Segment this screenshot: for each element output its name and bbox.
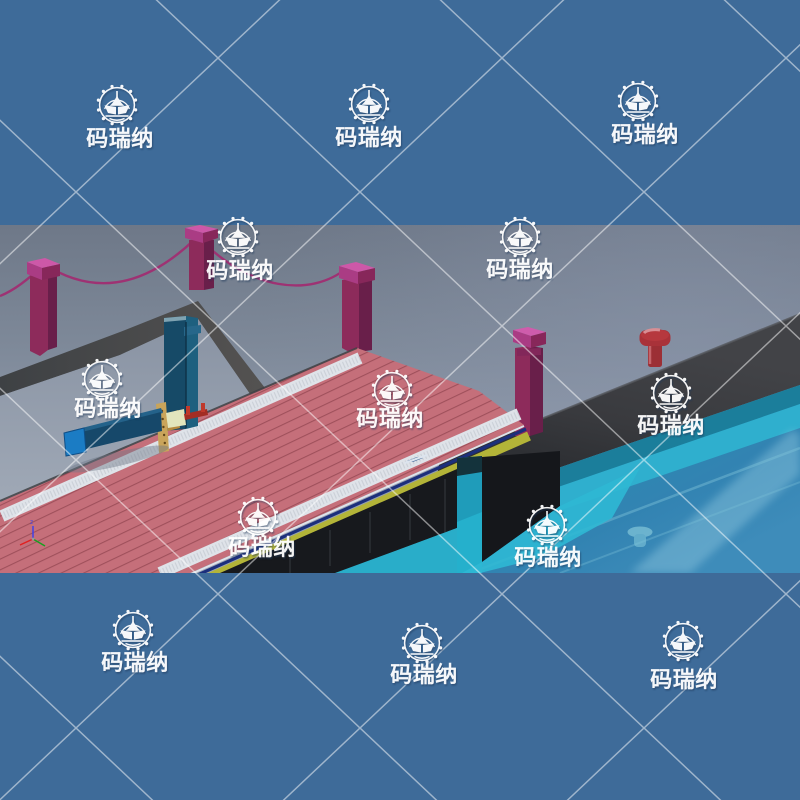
svg-text:码瑞纳: 码瑞纳 [101,650,169,675]
svg-text:码瑞纳: 码瑞纳 [514,545,582,570]
svg-text:码瑞纳: 码瑞纳 [86,126,154,151]
svg-text:码瑞纳: 码瑞纳 [74,396,142,421]
svg-text:码瑞纳: 码瑞纳 [335,125,403,150]
svg-text:码瑞纳: 码瑞纳 [390,662,458,687]
svg-text:码瑞纳: 码瑞纳 [206,258,274,283]
svg-text:码瑞纳: 码瑞纳 [486,257,554,282]
svg-text:码瑞纳: 码瑞纳 [637,413,705,438]
svg-text:码瑞纳: 码瑞纳 [611,122,679,147]
svg-text:码瑞纳: 码瑞纳 [356,406,424,431]
svg-text:码瑞纳: 码瑞纳 [228,535,296,560]
svg-text:码瑞纳: 码瑞纳 [650,667,718,692]
